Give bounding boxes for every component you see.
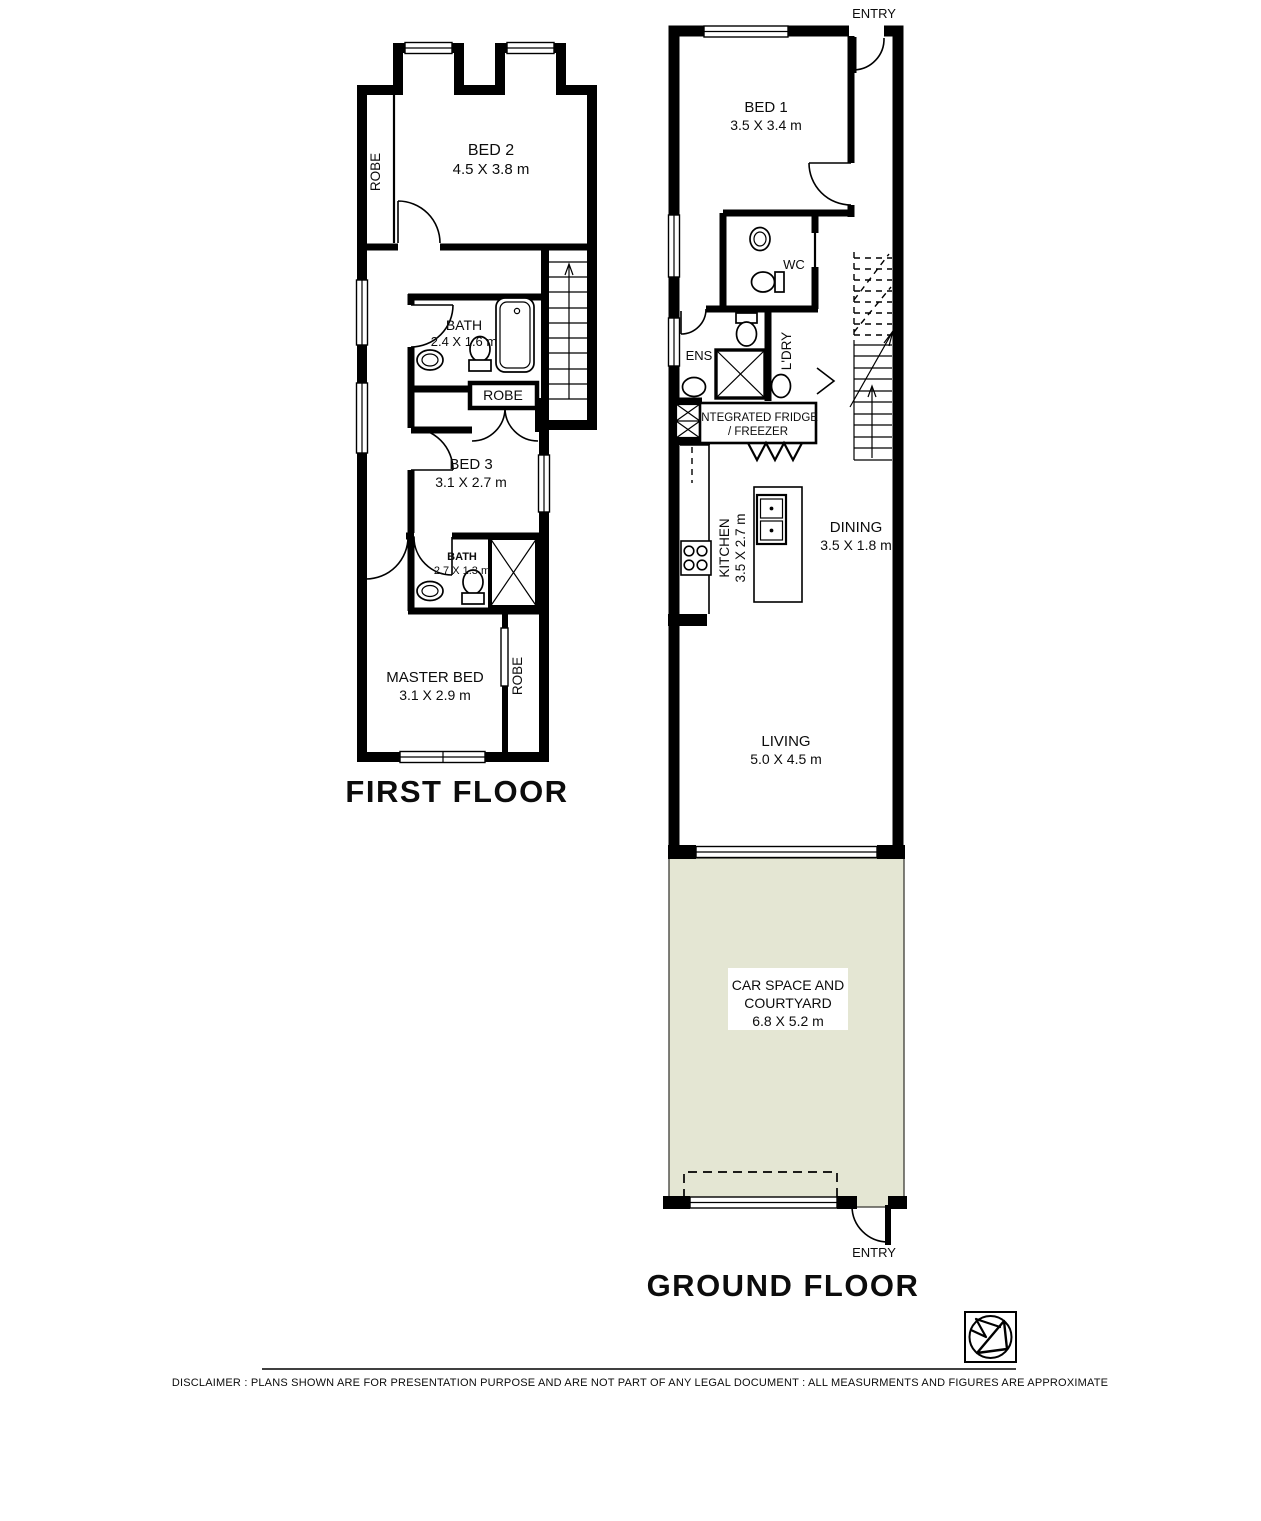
robe-master-label: ROBE [510, 657, 525, 695]
gf-entry-bottom-door-leaf [885, 1205, 891, 1245]
bath-lower-dims: 2.7 X 1.3 m [434, 565, 490, 577]
gf-kitchen-doorway-chevron [817, 368, 834, 394]
bed2-label: BED 2 [468, 142, 514, 159]
courtyard-label-line2: COURTYARD [744, 995, 831, 1011]
bed3-label: BED 3 [449, 456, 492, 473]
courtyard-label: CAR SPACE AND COURTYARD 6.8 X 5.2 m [728, 968, 848, 1030]
dining-label: DINING [830, 519, 883, 536]
ff-bathtub [496, 298, 534, 372]
compass-icon [965, 1312, 1016, 1362]
bed3-dims: 3.1 X 2.7 m [435, 474, 507, 490]
gf-rear-slider [668, 845, 905, 859]
fridge-label-line1: INTEGRATED FRIDGE [698, 412, 818, 424]
gf-entry-bottom-door-arc [852, 1206, 888, 1242]
first-floor-title: FIRST FLOOR [345, 774, 568, 809]
gf-laundry-tub [772, 375, 791, 398]
master-bed-dims: 3.1 X 2.9 m [399, 687, 471, 703]
fridge-label-line2: / FREEZER [728, 426, 788, 438]
floorplan-page: BED 2 4.5 X 3.8 m ROBE BATH 2.4 X 1.6 m … [0, 0, 1261, 1521]
entry-top-label: ENTRY [852, 6, 896, 21]
ff-master-robe-slider [501, 628, 508, 686]
ff-shower [490, 538, 537, 607]
gf-entry-top-door [854, 37, 884, 73]
living-label: LIVING [761, 733, 810, 750]
dining-dims: 3.5 X 1.8 m [820, 537, 892, 553]
bath-upper-dims: 2.4 X 1.6 m [431, 334, 497, 349]
master-bed-label: MASTER BED [386, 669, 484, 686]
gf-fridge: INTEGRATED FRIDGE / FREEZER [676, 403, 818, 460]
first-floor-plan: BED 2 4.5 X 3.8 m ROBE BATH 2.4 X 1.6 m … [345, 43, 592, 810]
footer: DISCLAIMER : PLANS SHOWN ARE FOR PRESENT… [172, 1369, 1108, 1389]
robe-hall-label: ROBE [483, 387, 523, 403]
ldry-label: L'DRY [779, 332, 794, 370]
gf-stairs [850, 252, 893, 460]
bed1-dims: 3.5 X 3.4 m [730, 117, 802, 133]
gf-wc-fixtures [750, 228, 784, 293]
bed1-label: BED 1 [744, 99, 787, 116]
bath-upper-label: BATH [446, 317, 482, 333]
bath-lower-label: BATH [447, 551, 477, 563]
robe-bed2-label: ROBE [368, 153, 383, 191]
ff-basin-upper [417, 350, 443, 370]
bed2-dims: 4.5 X 3.8 m [453, 161, 530, 178]
gf-breakline-zigzag [748, 443, 802, 460]
ground-floor-plan: INTEGRATED FRIDGE / FREEZER [647, 6, 920, 1303]
courtyard-dims: 6.8 X 5.2 m [752, 1013, 824, 1029]
living-dims: 5.0 X 4.5 m [750, 751, 822, 767]
wc-label: WC [783, 257, 805, 272]
ff-stairs [549, 262, 588, 399]
courtyard-area [669, 858, 904, 1207]
ground-floor-title: GROUND FLOOR [647, 1268, 920, 1303]
floorplan-drawing: BED 2 4.5 X 3.8 m ROBE BATH 2.4 X 1.6 m … [0, 0, 1261, 1521]
kitchen-dims: 3.5 X 2.7 m [733, 513, 748, 582]
kitchen-label: KITCHEN [717, 518, 732, 577]
ff-basin-lower [417, 582, 443, 601]
courtyard-label-line1: CAR SPACE AND [732, 977, 845, 993]
disclaimer-text: DISCLAIMER : PLANS SHOWN ARE FOR PRESENT… [172, 1377, 1108, 1389]
entry-bottom-label: ENTRY [852, 1245, 896, 1260]
ens-label: ENS [686, 348, 713, 363]
